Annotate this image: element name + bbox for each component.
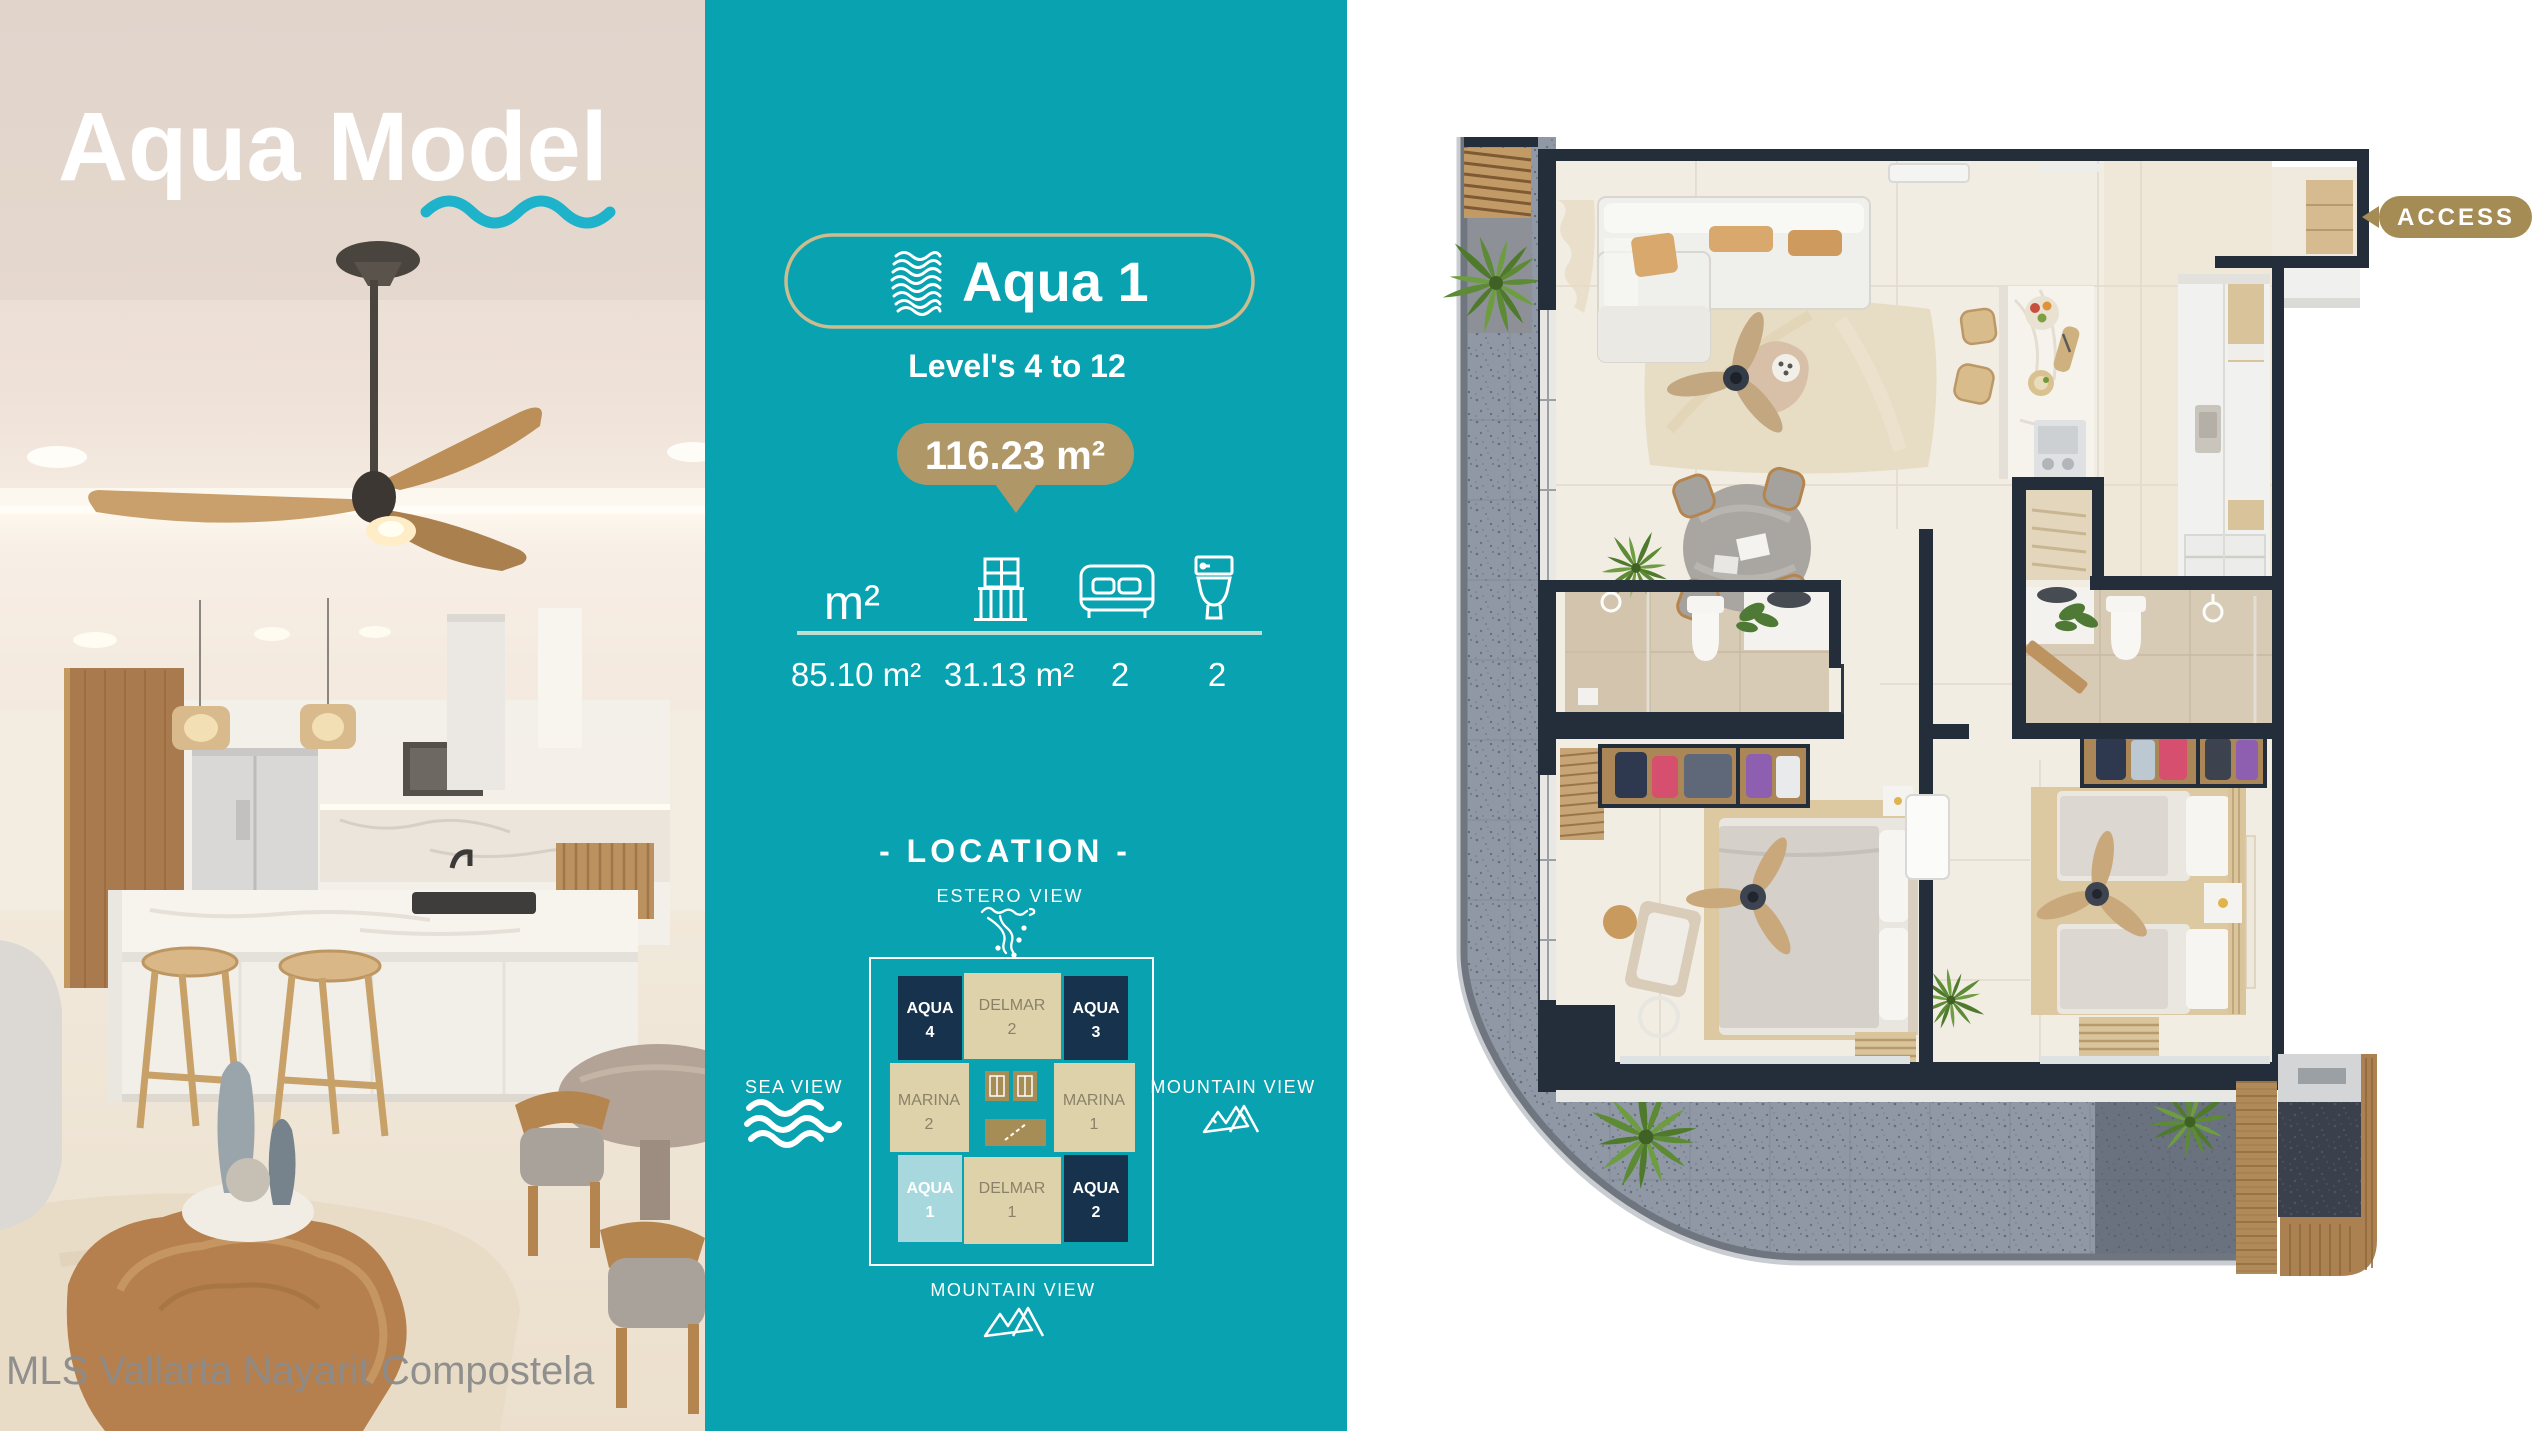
- svg-text:AQUA: AQUA: [1072, 1180, 1120, 1197]
- svg-text:Level's 4 to 12: Level's 4 to 12: [908, 348, 1126, 384]
- svg-text:AQUA: AQUA: [1072, 1000, 1120, 1017]
- svg-text:- LOCATION -: - LOCATION -: [879, 833, 1131, 869]
- svg-text:2: 2: [1111, 656, 1129, 693]
- svg-text:1: 1: [1008, 1204, 1017, 1221]
- svg-text:MOUNTAIN VIEW: MOUNTAIN VIEW: [1150, 1077, 1315, 1097]
- svg-text:ESTERO VIEW: ESTERO VIEW: [936, 886, 1083, 906]
- svg-text:31.13 m²: 31.13 m²: [944, 656, 1074, 693]
- svg-text:Aqua Model: Aqua Model: [58, 92, 608, 201]
- svg-text:2: 2: [1208, 656, 1226, 693]
- svg-text:1: 1: [926, 1204, 935, 1221]
- svg-text:1: 1: [1090, 1116, 1099, 1133]
- svg-text:SEA VIEW: SEA VIEW: [745, 1077, 843, 1097]
- svg-text:2: 2: [1092, 1204, 1101, 1221]
- svg-text:DELMAR: DELMAR: [979, 1180, 1046, 1197]
- svg-text:85.10 m²: 85.10 m²: [791, 656, 921, 693]
- svg-text:ACCESS: ACCESS: [2397, 204, 2515, 231]
- svg-text:4: 4: [926, 1024, 935, 1041]
- svg-text:AQUA: AQUA: [906, 1000, 954, 1017]
- svg-text:Aqua 1: Aqua 1: [962, 250, 1149, 313]
- svg-text:2: 2: [925, 1116, 934, 1133]
- svg-text:AQUA: AQUA: [906, 1180, 954, 1197]
- svg-text:MARINA: MARINA: [1063, 1092, 1126, 1109]
- svg-text:MARINA: MARINA: [898, 1092, 961, 1109]
- svg-text:m²: m²: [824, 577, 880, 630]
- svg-text:116.23 m²: 116.23 m²: [925, 434, 1105, 478]
- svg-text:MLS Vallarta Nayarit Compostel: MLS Vallarta Nayarit Compostela: [6, 1349, 595, 1393]
- svg-text:MOUNTAIN VIEW: MOUNTAIN VIEW: [930, 1280, 1095, 1300]
- svg-text:DELMAR: DELMAR: [979, 997, 1046, 1014]
- svg-text:2: 2: [1008, 1021, 1017, 1038]
- svg-text:3: 3: [1092, 1024, 1101, 1041]
